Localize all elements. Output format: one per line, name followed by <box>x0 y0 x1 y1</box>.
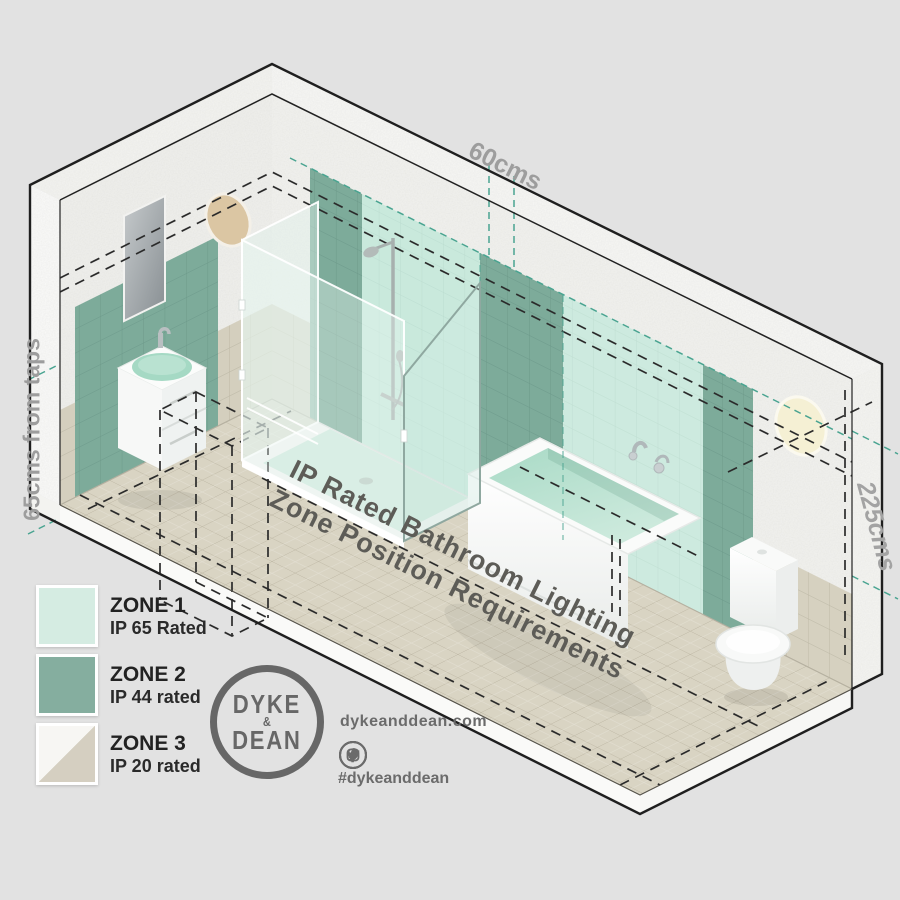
pinterest-icon[interactable] <box>338 740 368 770</box>
zone2-rating: IP 44 rated <box>110 687 201 708</box>
legend-row-zone2: ZONE 2 IP 44 rated <box>36 657 207 713</box>
zone1-swatch <box>36 585 98 647</box>
legend-row-zone1: ZONE 1 IP 65 Rated <box>36 588 207 644</box>
poster-canvas: 60cms 65cms from taps 225cms IP Rated Ba… <box>0 0 900 900</box>
zone2-swatch <box>36 654 98 716</box>
zone3-swatch <box>36 723 98 785</box>
website-link[interactable]: dykeanddean.com <box>340 713 487 731</box>
zone2-label: ZONE 2 <box>110 663 201 687</box>
dyke-and-dean-logo: DYKE & DEAN <box>210 665 324 779</box>
hashtag-label[interactable]: #dykeanddean <box>338 770 449 788</box>
zone3-rating: IP 20 rated <box>110 756 201 777</box>
zone3-label: ZONE 3 <box>110 732 201 756</box>
logo-line2: DEAN <box>232 728 301 752</box>
zone1-label: ZONE 1 <box>110 594 207 618</box>
zone-legend: ZONE 1 IP 65 Rated ZONE 2 IP 44 rated ZO… <box>36 588 207 795</box>
logo-line1: DYKE <box>232 692 301 716</box>
legend-row-zone3: ZONE 3 IP 20 rated <box>36 726 207 782</box>
mirror <box>124 196 165 321</box>
zone1-rating: IP 65 Rated <box>110 618 207 639</box>
dimension-label-65cms-from-taps: 65cms from taps <box>19 320 46 540</box>
